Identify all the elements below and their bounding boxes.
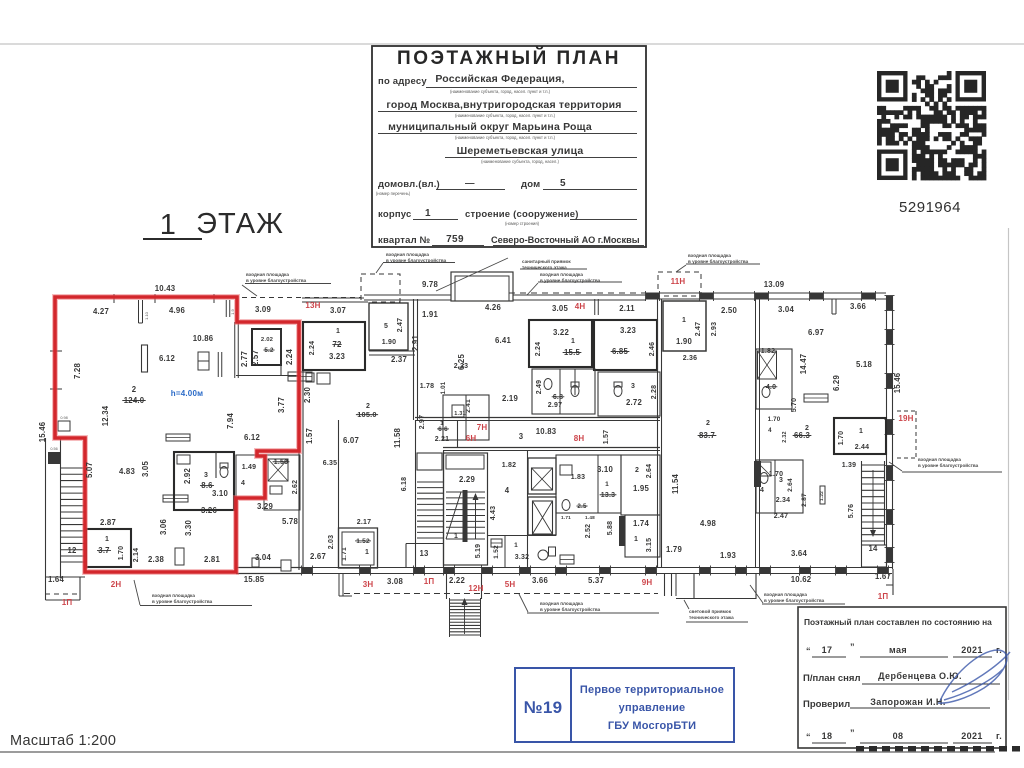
svg-text:(номер строения): (номер строения) bbox=[505, 221, 540, 226]
svg-text:1: 1 bbox=[859, 428, 863, 435]
svg-text:7.28: 7.28 bbox=[73, 363, 82, 379]
svg-text:1.90: 1.90 bbox=[382, 339, 396, 346]
svg-text:в уровне благоустройства: в уровне благоустройства bbox=[386, 257, 447, 263]
svg-text:5Н: 5Н bbox=[505, 580, 516, 589]
svg-text:5.18: 5.18 bbox=[856, 360, 872, 369]
svg-text:11.54: 11.54 bbox=[671, 474, 680, 495]
svg-text:1.31: 1.31 bbox=[454, 411, 466, 417]
svg-text:2021: 2021 bbox=[961, 645, 983, 655]
svg-text:4.96: 4.96 bbox=[169, 306, 185, 315]
svg-text:5.37: 5.37 bbox=[588, 576, 604, 585]
svg-text:3: 3 bbox=[779, 477, 783, 484]
svg-text:квартал №: квартал № bbox=[378, 235, 431, 246]
svg-text:1.78: 1.78 bbox=[420, 383, 434, 390]
svg-text:10.83: 10.83 bbox=[536, 427, 557, 436]
svg-text:6.97: 6.97 bbox=[808, 328, 824, 337]
svg-text:1.82: 1.82 bbox=[761, 348, 775, 355]
svg-text:5: 5 bbox=[384, 323, 388, 330]
svg-text:1.71: 1.71 bbox=[341, 547, 348, 561]
svg-text:1.91: 1.91 bbox=[422, 310, 438, 319]
svg-text:5: 5 bbox=[560, 178, 566, 189]
svg-text:2.47: 2.47 bbox=[695, 322, 702, 336]
svg-text:14.47: 14.47 bbox=[799, 354, 808, 375]
svg-text:6.6: 6.6 bbox=[438, 426, 448, 433]
svg-text:Масштаб 1:200: Масштаб 1:200 bbox=[10, 733, 116, 749]
svg-text:1: 1 bbox=[336, 328, 340, 335]
svg-text:1: 1 bbox=[454, 533, 458, 540]
svg-text:входная площадка: входная площадка bbox=[764, 592, 807, 597]
svg-text:2.34: 2.34 bbox=[776, 497, 790, 504]
svg-text:4: 4 bbox=[505, 486, 510, 495]
svg-text:1.39: 1.39 bbox=[842, 462, 856, 469]
svg-text:город Москва,внутригородская т: город Москва,внутригородская территория bbox=[386, 99, 621, 111]
svg-text:2.64: 2.64 bbox=[787, 478, 794, 492]
svg-text:2.32: 2.32 bbox=[782, 431, 788, 443]
svg-text:по адресу: по адресу bbox=[378, 76, 427, 87]
svg-text:3.06: 3.06 bbox=[159, 519, 168, 535]
svg-text:2.14: 2.14 bbox=[133, 548, 140, 562]
svg-text:1: 1 bbox=[160, 209, 177, 241]
svg-text:входная площадка: входная площадка bbox=[540, 272, 583, 277]
svg-text:4.43: 4.43 bbox=[490, 506, 497, 520]
svg-text:2.62: 2.62 bbox=[292, 480, 299, 494]
svg-text:2.81: 2.81 bbox=[204, 555, 220, 564]
svg-text:”: ” bbox=[850, 642, 855, 652]
svg-text:4Н: 4Н bbox=[575, 302, 586, 311]
svg-text:4.0: 4.0 bbox=[766, 384, 776, 391]
svg-text:08: 08 bbox=[893, 731, 904, 741]
svg-text:(наименование субъекта, город,: (наименование субъекта, город, насел.) bbox=[481, 159, 559, 164]
svg-text:Запорожан И.Н.: Запорожан И.Н. bbox=[870, 697, 945, 707]
svg-text:759: 759 bbox=[446, 234, 464, 245]
svg-text:в уровне благоустройства: в уровне благоустройства bbox=[688, 258, 749, 264]
svg-text:5.19: 5.19 bbox=[475, 544, 482, 558]
svg-text:3.22: 3.22 bbox=[553, 328, 569, 337]
svg-text:2: 2 bbox=[635, 467, 639, 474]
svg-text:3.04: 3.04 bbox=[778, 305, 794, 314]
svg-text:6.29: 6.29 bbox=[832, 375, 841, 391]
svg-text:корпус: корпус bbox=[378, 209, 412, 220]
svg-text:2.67: 2.67 bbox=[310, 552, 326, 561]
svg-text:1: 1 bbox=[514, 542, 518, 549]
svg-text:3.66: 3.66 bbox=[532, 576, 548, 585]
svg-text:1.83: 1.83 bbox=[571, 474, 585, 481]
svg-text:2.41: 2.41 bbox=[465, 399, 472, 413]
svg-text:2.64: 2.64 bbox=[646, 464, 653, 478]
svg-text:световой приямок: световой приямок bbox=[689, 608, 732, 614]
svg-text:2.21: 2.21 bbox=[435, 436, 449, 443]
svg-text:входная площадка: входная площадка bbox=[540, 601, 583, 606]
svg-text:2.57: 2.57 bbox=[251, 350, 260, 366]
svg-text:3.07: 3.07 bbox=[330, 306, 346, 315]
svg-text:2Н: 2Н bbox=[111, 580, 122, 589]
svg-text:входная площадка: входная площадка bbox=[386, 252, 429, 257]
svg-text:4: 4 bbox=[241, 480, 245, 487]
svg-text:1.48: 1.48 bbox=[585, 515, 595, 520]
svg-text:3.09: 3.09 bbox=[255, 305, 271, 314]
svg-text:3Н: 3Н bbox=[363, 580, 374, 589]
svg-text:муниципальный округ Марьина Ро: муниципальный округ Марьина Роща bbox=[388, 121, 592, 133]
svg-text:3: 3 bbox=[631, 383, 635, 390]
svg-text:3.10: 3.10 bbox=[212, 489, 228, 498]
svg-text:5.78: 5.78 bbox=[282, 517, 298, 526]
svg-text:13.3: 13.3 bbox=[601, 492, 615, 499]
svg-text:3.26: 3.26 bbox=[201, 506, 217, 515]
svg-text:1.52: 1.52 bbox=[493, 545, 500, 559]
svg-text:2.72: 2.72 bbox=[626, 398, 642, 407]
svg-text:1.52: 1.52 bbox=[356, 538, 370, 545]
svg-text:2: 2 bbox=[132, 385, 137, 394]
svg-text:3.08: 3.08 bbox=[387, 577, 403, 586]
svg-text:4.98: 4.98 bbox=[700, 519, 716, 528]
svg-text:5.70: 5.70 bbox=[791, 398, 798, 412]
svg-text:2.19: 2.19 bbox=[502, 394, 518, 403]
svg-text:2.47: 2.47 bbox=[774, 513, 788, 520]
svg-text:1: 1 bbox=[682, 317, 686, 324]
svg-text:3: 3 bbox=[519, 432, 524, 441]
svg-text:2.5: 2.5 bbox=[577, 503, 587, 510]
svg-text:3: 3 bbox=[204, 472, 208, 479]
svg-text:строение (сооружение): строение (сооружение) bbox=[465, 209, 579, 220]
svg-text:“: “ bbox=[806, 732, 811, 742]
svg-text:15.85: 15.85 bbox=[244, 575, 265, 584]
svg-text:12.34: 12.34 bbox=[101, 405, 110, 426]
svg-text:Дербенцева О.Ю.: Дербенцева О.Ю. bbox=[878, 671, 962, 681]
svg-text:5.88: 5.88 bbox=[607, 521, 614, 535]
svg-text:1.95: 1.95 bbox=[633, 484, 649, 493]
svg-text:8Н: 8Н bbox=[574, 434, 585, 443]
svg-text:1.67: 1.67 bbox=[875, 572, 891, 581]
svg-text:19Н: 19Н bbox=[898, 414, 913, 423]
svg-text:1П: 1П bbox=[62, 598, 73, 607]
svg-text:1: 1 bbox=[425, 208, 431, 219]
svg-text:1.57: 1.57 bbox=[603, 430, 610, 444]
svg-text:10.62: 10.62 bbox=[791, 575, 812, 584]
svg-text:—: — bbox=[465, 178, 475, 189]
svg-text:3.05: 3.05 bbox=[141, 461, 150, 477]
svg-text:2: 2 bbox=[706, 420, 710, 427]
svg-text:14: 14 bbox=[868, 544, 878, 553]
svg-text:12: 12 bbox=[67, 546, 77, 555]
svg-text:Российская Федерация,: Российская Федерация, bbox=[435, 73, 564, 85]
svg-text:3.04: 3.04 bbox=[255, 553, 271, 562]
svg-text:1.70: 1.70 bbox=[838, 431, 845, 445]
svg-text:1.01: 1.01 bbox=[440, 381, 447, 394]
svg-text:(наименование субъекта, город,: (наименование субъекта, город, насел. пу… bbox=[450, 89, 551, 94]
svg-text:2: 2 bbox=[366, 403, 370, 410]
svg-text:13Н: 13Н bbox=[305, 301, 320, 310]
svg-text:2.33: 2.33 bbox=[454, 363, 468, 370]
svg-text:5.76: 5.76 bbox=[848, 504, 855, 518]
svg-text:1.90: 1.90 bbox=[676, 337, 692, 346]
svg-text:2.03: 2.03 bbox=[328, 535, 335, 549]
svg-text:11.58: 11.58 bbox=[393, 428, 402, 449]
svg-text:4: 4 bbox=[760, 487, 764, 494]
svg-text:2.24: 2.24 bbox=[535, 342, 542, 356]
svg-text:2.47: 2.47 bbox=[397, 318, 404, 332]
svg-text:13.09: 13.09 bbox=[764, 280, 785, 289]
svg-text:1: 1 bbox=[365, 549, 369, 556]
svg-text:4.27: 4.27 bbox=[93, 307, 109, 316]
svg-text:11Н: 11Н bbox=[671, 277, 686, 286]
svg-text:2.11: 2.11 bbox=[619, 304, 635, 313]
svg-text:3.30: 3.30 bbox=[184, 520, 193, 536]
svg-text:13: 13 bbox=[419, 549, 429, 558]
svg-text:Первое территориальное: Первое территориальное bbox=[580, 684, 724, 696]
svg-text:6.07: 6.07 bbox=[343, 436, 359, 445]
svg-text:2.87: 2.87 bbox=[100, 518, 116, 527]
svg-text:Проверил: Проверил bbox=[803, 699, 850, 710]
svg-text:2.30: 2.30 bbox=[303, 387, 312, 403]
svg-text:5291964: 5291964 bbox=[899, 199, 961, 216]
svg-text:3.23: 3.23 bbox=[620, 326, 636, 335]
svg-text:6.8: 6.8 bbox=[553, 394, 563, 401]
svg-text:(наименование субъекта, город,: (наименование субъекта, город, насел. пу… bbox=[455, 135, 556, 140]
svg-text:1П: 1П bbox=[424, 577, 435, 586]
svg-text:П/план снял: П/план снял bbox=[803, 673, 861, 684]
svg-text:7Н: 7Н bbox=[477, 423, 488, 432]
svg-text:2.52: 2.52 bbox=[585, 524, 592, 538]
svg-text:10.86: 10.86 bbox=[193, 334, 214, 343]
svg-text:6.18: 6.18 bbox=[401, 477, 408, 491]
svg-text:1.74: 1.74 bbox=[633, 519, 649, 528]
svg-text:1.50: 1.50 bbox=[274, 459, 288, 466]
svg-text:h=4.00м: h=4.00м bbox=[171, 389, 203, 398]
svg-text:в уровне благоустройства: в уровне благоустройства bbox=[764, 597, 825, 603]
svg-text:6.41: 6.41 bbox=[495, 336, 511, 345]
svg-text:1.10: 1.10 bbox=[144, 311, 149, 320]
svg-text:2.46: 2.46 bbox=[649, 342, 656, 356]
svg-text:1.22: 1.22 bbox=[819, 491, 824, 501]
svg-text:2.93: 2.93 bbox=[711, 322, 718, 336]
svg-text:2.37: 2.37 bbox=[391, 355, 407, 364]
svg-text:2.97: 2.97 bbox=[548, 402, 562, 409]
svg-text:2.91: 2.91 bbox=[411, 335, 420, 351]
svg-text:3.77: 3.77 bbox=[277, 397, 286, 413]
svg-text:2.24: 2.24 bbox=[309, 341, 316, 355]
svg-text:ЭТАЖ: ЭТАЖ bbox=[196, 208, 284, 240]
svg-text:№19: №19 bbox=[524, 698, 562, 717]
svg-text:1.93: 1.93 bbox=[720, 551, 736, 560]
svg-text:5.2: 5.2 bbox=[264, 347, 274, 354]
svg-text:9Н: 9Н bbox=[642, 578, 653, 587]
svg-text:17: 17 bbox=[822, 645, 833, 655]
svg-text:домовл.(вл.): домовл.(вл.) bbox=[378, 179, 440, 190]
svg-text:6.12: 6.12 bbox=[244, 433, 260, 442]
svg-text:Северо-Восточный АО г.Москвы: Северо-Восточный АО г.Москвы bbox=[491, 235, 640, 245]
svg-text:1.71: 1.71 bbox=[561, 515, 571, 520]
svg-text:(номер перечень): (номер перечень) bbox=[376, 191, 411, 196]
svg-text:3.29: 3.29 bbox=[257, 502, 273, 511]
svg-text:0.98: 0.98 bbox=[60, 416, 67, 420]
svg-text:2.38: 2.38 bbox=[148, 555, 164, 564]
svg-text:3.64: 3.64 bbox=[791, 549, 807, 558]
svg-text:входная площадка: входная площадка bbox=[152, 593, 195, 598]
svg-text:1.49: 1.49 bbox=[242, 464, 256, 471]
svg-text:3.32: 3.32 bbox=[515, 554, 529, 561]
svg-text:входная площадка: входная площадка bbox=[918, 457, 961, 462]
svg-text:2.22: 2.22 bbox=[449, 576, 465, 585]
svg-text:в уровне благоустройства: в уровне благоустройства bbox=[246, 277, 307, 283]
svg-text:3.66: 3.66 bbox=[850, 302, 866, 311]
svg-text:2.02: 2.02 bbox=[261, 337, 274, 343]
svg-text:6Н: 6Н bbox=[466, 434, 477, 443]
svg-text:1.70: 1.70 bbox=[768, 416, 781, 423]
svg-text:12Н: 12Н bbox=[468, 584, 483, 593]
svg-text:ПОЭТАЖНЫЙ ПЛАН: ПОЭТАЖНЫЙ ПЛАН bbox=[397, 47, 621, 69]
svg-text:4.26: 4.26 bbox=[485, 303, 501, 312]
svg-text:“: “ bbox=[806, 646, 811, 656]
svg-text:2.77: 2.77 bbox=[240, 351, 249, 367]
svg-text:4: 4 bbox=[768, 427, 772, 434]
svg-text:4.83: 4.83 bbox=[119, 467, 135, 476]
svg-text:(наименование субъекта, город,: (наименование субъекта, город, насел. пу… bbox=[455, 113, 556, 118]
svg-text:2.49: 2.49 bbox=[536, 380, 543, 394]
svg-text:технического этажа: технического этажа bbox=[689, 615, 734, 620]
svg-text:Поэтажный план составлен по со: Поэтажный план составлен по состоянию на bbox=[804, 617, 992, 627]
svg-text:15.46: 15.46 bbox=[38, 421, 47, 442]
svg-text:Шереметьевская улица: Шереметьевская улица bbox=[457, 145, 584, 157]
svg-text:2.97: 2.97 bbox=[419, 415, 426, 429]
svg-text:санитарный приямок: санитарный приямок bbox=[522, 258, 571, 264]
svg-text:управление: управление bbox=[619, 702, 686, 714]
svg-text:2.50: 2.50 bbox=[721, 306, 737, 315]
svg-text:1П: 1П bbox=[878, 592, 889, 601]
svg-text:2.36: 2.36 bbox=[683, 355, 697, 362]
svg-text:2.28: 2.28 bbox=[651, 385, 658, 399]
svg-text:7.94: 7.94 bbox=[226, 413, 235, 429]
svg-text:2.17: 2.17 bbox=[357, 519, 371, 526]
svg-text:”: ” bbox=[850, 728, 855, 738]
svg-text:5.07: 5.07 bbox=[85, 462, 94, 478]
svg-text:0.56: 0.56 bbox=[50, 447, 57, 451]
svg-text:2.87: 2.87 bbox=[801, 493, 808, 507]
svg-text:г.: г. bbox=[996, 731, 1002, 741]
svg-text:2.44: 2.44 bbox=[855, 444, 869, 451]
svg-text:1.64: 1.64 bbox=[48, 575, 64, 584]
svg-text:1: 1 bbox=[634, 536, 638, 543]
svg-text:2.29: 2.29 bbox=[459, 475, 475, 484]
svg-text:входная площадка: входная площадка bbox=[246, 272, 289, 277]
svg-text:15.46: 15.46 bbox=[893, 372, 902, 393]
svg-text:1.70: 1.70 bbox=[118, 546, 125, 560]
svg-text:1.82: 1.82 bbox=[502, 462, 516, 469]
svg-text:мая: мая bbox=[889, 645, 907, 655]
svg-text:6.12: 6.12 bbox=[159, 354, 175, 363]
svg-text:2.24: 2.24 bbox=[285, 349, 294, 365]
svg-text:2.92: 2.92 bbox=[183, 468, 192, 484]
svg-text:18: 18 bbox=[822, 731, 833, 741]
svg-text:9.78: 9.78 bbox=[422, 280, 438, 289]
svg-text:3.23: 3.23 bbox=[329, 352, 345, 361]
svg-text:3.05: 3.05 bbox=[552, 304, 568, 313]
svg-text:входная площадка: входная площадка bbox=[688, 253, 731, 258]
svg-text:3.15: 3.15 bbox=[646, 538, 653, 552]
svg-text:3.10: 3.10 bbox=[597, 465, 613, 474]
svg-text:1.57: 1.57 bbox=[305, 428, 314, 444]
svg-text:6.35: 6.35 bbox=[323, 460, 337, 467]
svg-text:в уровне благоустройства: в уровне благоустройства bbox=[918, 462, 979, 468]
svg-text:1.79: 1.79 bbox=[666, 545, 682, 554]
svg-text:в уровне благоустройства: в уровне благоустройства bbox=[540, 606, 601, 612]
svg-text:1: 1 bbox=[571, 338, 575, 345]
svg-text:ГБУ МосгорБТИ: ГБУ МосгорБТИ bbox=[608, 720, 696, 732]
svg-text:1: 1 bbox=[105, 536, 109, 543]
svg-text:дом: дом bbox=[521, 179, 540, 190]
svg-text:в уровне благоустройства: в уровне благоустройства bbox=[152, 598, 213, 604]
svg-text:1: 1 bbox=[605, 481, 609, 488]
svg-text:10.43: 10.43 bbox=[155, 284, 176, 293]
svg-text:2021: 2021 bbox=[961, 731, 983, 741]
